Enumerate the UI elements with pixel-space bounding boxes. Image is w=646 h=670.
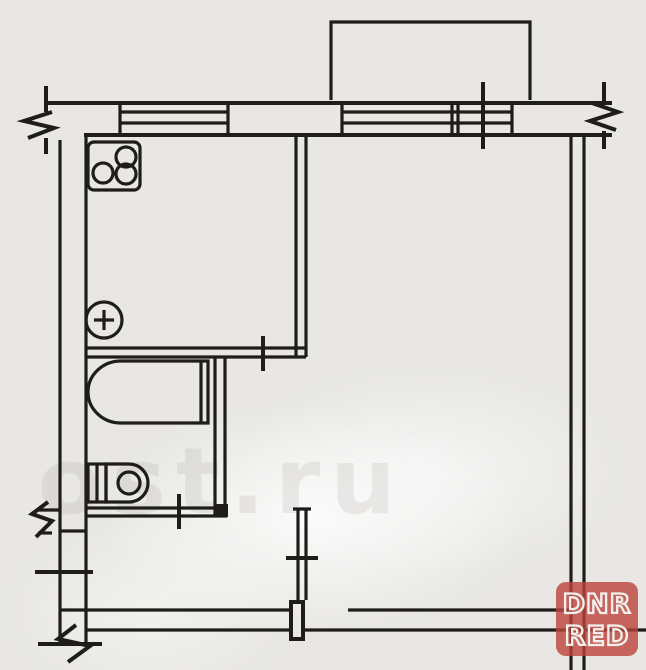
bathroom-bottom-wall xyxy=(86,508,227,516)
floor-plan-scan: ost.ru xyxy=(0,0,646,670)
wall-break-top-right xyxy=(590,82,618,149)
entrance-door-post xyxy=(291,602,303,639)
top-wall xyxy=(45,103,612,135)
logo-line1: DNR xyxy=(563,589,632,620)
bathtub-symbol xyxy=(88,361,208,423)
stove-symbol xyxy=(88,142,140,190)
dnr-red-logo: DNR RED xyxy=(556,582,638,656)
sink-symbol xyxy=(86,302,122,338)
living-room-window xyxy=(342,103,512,135)
entrance-door-leaf xyxy=(286,509,318,600)
kitchen-window xyxy=(120,103,228,135)
kitchen-right-wall xyxy=(296,135,306,357)
wall-break-left-middle xyxy=(32,502,60,537)
logo-line2: RED xyxy=(565,621,630,652)
wall-break-top-left xyxy=(24,86,54,154)
toilet-symbol xyxy=(88,464,148,502)
left-wall xyxy=(35,135,93,646)
kitchen-bottom-wall xyxy=(86,348,306,357)
bathroom-right-wall xyxy=(214,357,228,517)
floor-plan-drawing xyxy=(0,0,646,670)
balcony-outline xyxy=(331,22,530,100)
burner-circle xyxy=(93,163,113,183)
